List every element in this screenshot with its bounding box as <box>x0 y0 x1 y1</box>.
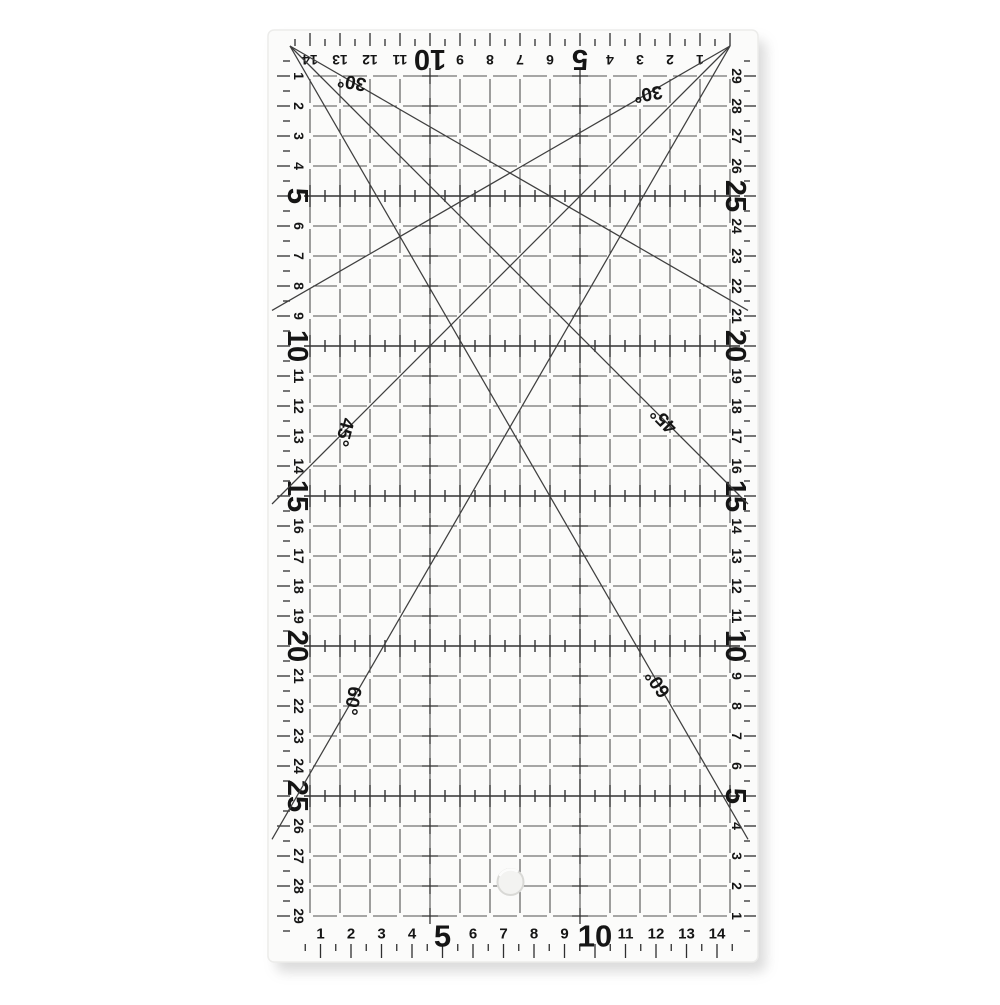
right-scale-number: 29 <box>729 68 745 84</box>
top-scale-number: 12 <box>362 52 378 68</box>
left-scale-number: 20 <box>281 630 313 662</box>
left-scale-number: 18 <box>291 578 307 594</box>
left-scale-number: 13 <box>291 428 307 444</box>
right-scale-number: 17 <box>729 428 745 444</box>
photo-canvas: 1234567891011121314123456789101112131412… <box>0 0 1000 1000</box>
top-scale-number: 4 <box>606 52 614 68</box>
right-scale-number: 2 <box>729 882 745 890</box>
left-scale-number: 22 <box>291 698 307 714</box>
left-scale-number: 23 <box>291 728 307 744</box>
right-scale-number: 28 <box>729 98 745 114</box>
top-scale-number: 8 <box>486 52 494 68</box>
left-scale-number: 6 <box>291 222 307 230</box>
right-scale-number: 3 <box>729 852 745 860</box>
right-scale-number: 6 <box>729 762 745 770</box>
bottom-scale-number: 1 <box>316 926 324 943</box>
left-scale-number: 24 <box>291 758 307 774</box>
top-scale-number: 7 <box>516 52 524 68</box>
left-scale-number: 7 <box>291 252 307 260</box>
right-scale-number: 9 <box>729 672 745 680</box>
right-scale-number: 18 <box>729 398 745 414</box>
top-scale-number: 13 <box>332 52 348 68</box>
left-scale-number: 21 <box>291 668 307 684</box>
left-scale-number: 4 <box>291 162 307 170</box>
right-scale-number: 8 <box>729 702 745 710</box>
right-scale-number: 22 <box>729 278 745 294</box>
bottom-scale-number: 13 <box>678 926 695 943</box>
bottom-scale-number: 2 <box>347 926 355 943</box>
right-scale-number: 7 <box>729 732 745 740</box>
top-scale-number: 6 <box>546 52 554 68</box>
bottom-scale-number: 12 <box>648 926 665 943</box>
right-scale-number: 5 <box>719 788 751 804</box>
right-scale-number: 26 <box>729 158 745 174</box>
right-scale-number: 20 <box>719 330 751 362</box>
top-scale-number: 10 <box>414 43 446 75</box>
left-scale-number: 2 <box>291 102 307 110</box>
left-scale-number: 16 <box>291 518 307 534</box>
left-scale-number: 12 <box>291 398 307 414</box>
right-scale-number: 21 <box>729 308 745 324</box>
left-scale-number: 3 <box>291 132 307 140</box>
right-scale-number: 10 <box>719 630 751 662</box>
left-scale-number: 5 <box>281 188 313 204</box>
hanging-hole <box>498 869 524 895</box>
right-scale-number: 14 <box>729 518 745 534</box>
right-scale-number: 25 <box>719 180 751 212</box>
top-scale-number: 3 <box>636 52 644 68</box>
left-scale-number: 19 <box>291 608 307 624</box>
bottom-scale-number: 5 <box>434 919 451 954</box>
right-scale-number: 12 <box>729 578 745 594</box>
left-scale-number: 8 <box>291 282 307 290</box>
bottom-scale-number: 7 <box>499 926 507 943</box>
left-scale-number: 11 <box>291 369 307 384</box>
bottom-scale-number: 14 <box>709 926 726 943</box>
right-scale-number: 16 <box>729 458 745 474</box>
bottom-scale-number: 11 <box>618 926 634 943</box>
right-scale-number: 24 <box>729 218 745 234</box>
left-scale-number: 29 <box>291 908 307 924</box>
bottom-scale-number: 9 <box>560 926 568 943</box>
right-scale-number: 1 <box>729 912 745 920</box>
right-scale-number: 15 <box>719 480 751 512</box>
left-scale-number: 27 <box>291 848 307 864</box>
left-scale-number: 26 <box>291 818 307 834</box>
bottom-scale-number: 4 <box>408 926 417 943</box>
left-scale-number: 1 <box>291 72 307 80</box>
left-scale-number: 9 <box>291 312 307 320</box>
right-scale-number: 11 <box>729 609 745 624</box>
left-scale-number: 15 <box>281 480 313 512</box>
right-scale-number: 27 <box>729 128 745 144</box>
top-scale-number: 2 <box>666 52 674 68</box>
bottom-scale-number: 8 <box>530 926 538 943</box>
top-scale-number: 9 <box>456 52 464 68</box>
bottom-scale-number: 3 <box>377 926 385 943</box>
left-scale-number: 28 <box>291 878 307 894</box>
left-scale-number: 10 <box>281 330 313 362</box>
top-scale-number: 11 <box>392 52 407 68</box>
bottom-scale-number: 10 <box>578 919 612 954</box>
right-scale-number: 19 <box>729 368 745 384</box>
right-scale-number: 23 <box>729 248 745 264</box>
quilting-ruler: 1234567891011121314123456789101112131412… <box>0 0 1000 1000</box>
bottom-scale-number: 6 <box>469 926 477 943</box>
right-scale-number: 13 <box>729 548 745 564</box>
top-scale-number: 5 <box>572 43 588 75</box>
left-scale-number: 17 <box>291 548 307 564</box>
